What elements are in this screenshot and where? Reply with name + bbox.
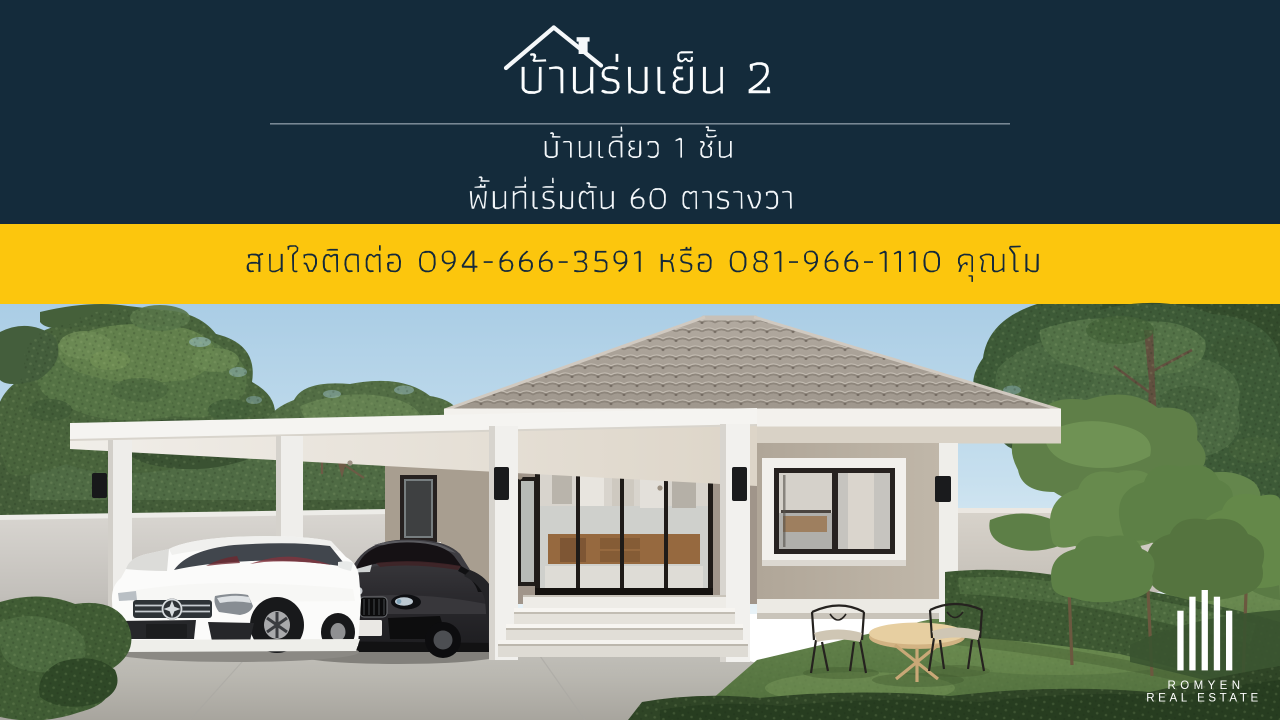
svg-text:ROMYEN: ROMYEN xyxy=(1168,680,1245,692)
svg-text:REAL ESTATE: REAL ESTATE xyxy=(1146,693,1261,705)
